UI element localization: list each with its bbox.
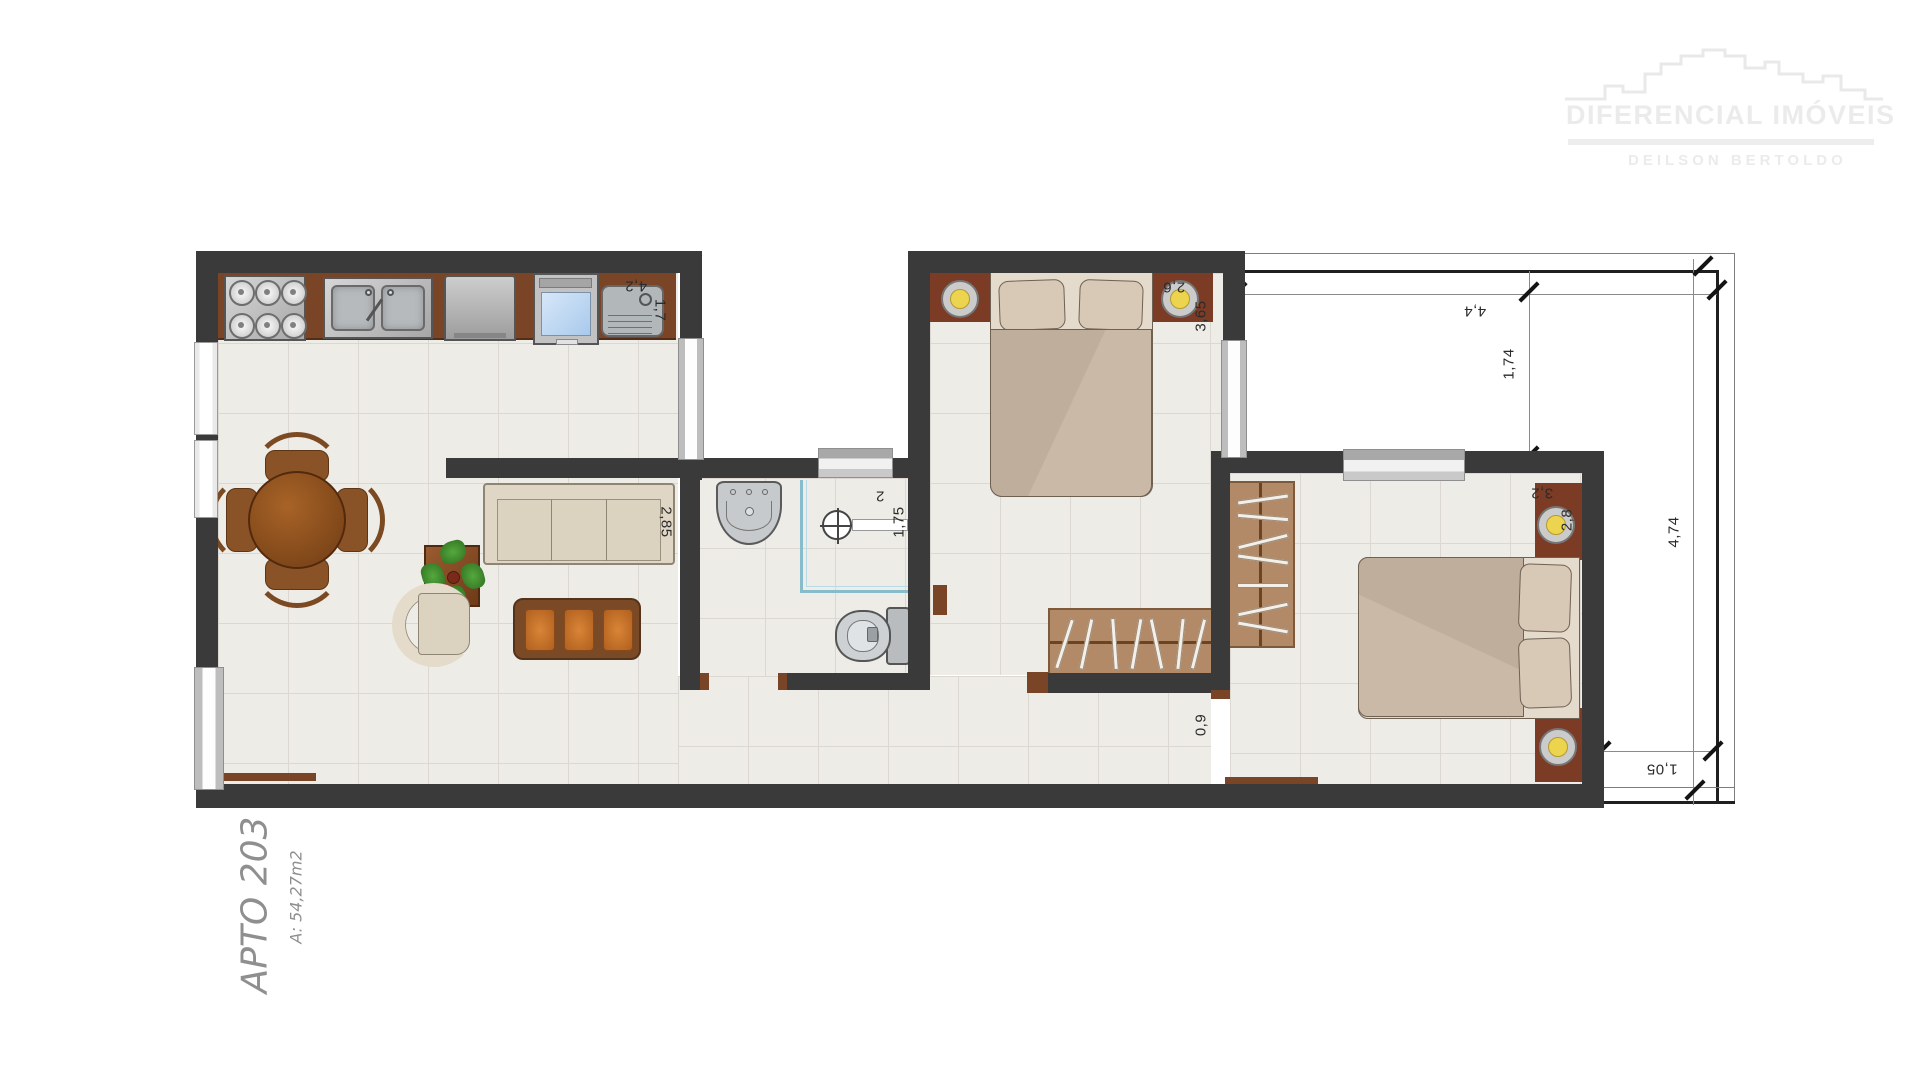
dim-tick <box>1692 255 1713 276</box>
kitchen-right-window <box>678 338 704 460</box>
balcony-inner-bottom-line <box>1601 787 1734 788</box>
dimension-line-balcony-side <box>1601 751 1715 752</box>
wall-bathroom-right <box>908 458 930 690</box>
skyline-logo-icon <box>1563 45 1885 101</box>
wall-bedroom2-right <box>1582 451 1604 808</box>
balcony-bottom-line <box>1601 801 1735 804</box>
bedroom1-door-jamb <box>933 585 947 615</box>
wall-bathroom-top <box>695 458 930 478</box>
wall-bottom <box>196 784 1604 808</box>
dim-balcony-side: 1,05 <box>1646 761 1677 778</box>
dim-bedroom2-width: 3,2 <box>1531 485 1553 502</box>
living-left-window <box>194 440 218 518</box>
toilet <box>835 605 911 667</box>
living-left-door-window <box>194 667 224 790</box>
balcony-outer-right-line <box>1734 253 1735 804</box>
closet-end-cap <box>1027 672 1048 693</box>
shower-head-icon <box>822 510 852 540</box>
watermark-brand: DIFERENCIAL IMÓVEIS <box>1566 100 1896 131</box>
dim-sofa-length: 2,85 <box>658 506 675 537</box>
bath-door-jamb <box>778 673 787 690</box>
apartment-title: APTO 203 <box>235 817 276 994</box>
table-cushion <box>603 609 633 651</box>
bedroom2-door-jamb <box>1211 690 1230 699</box>
bedroom2-wardrobe <box>1228 481 1295 648</box>
double-sink <box>323 277 433 339</box>
kitchen-left-window <box>194 342 218 435</box>
stove-cooktop <box>224 275 306 341</box>
armchair <box>392 583 476 667</box>
dim-bath-width: 2 <box>876 488 885 505</box>
wall-bedroom2-left <box>1211 451 1230 693</box>
dimension-line-balcony-width <box>1233 294 1717 295</box>
dim-bedroom1-depth: 3,65 <box>1193 300 1210 331</box>
dimension-line-balcony-full-depth <box>1693 259 1694 805</box>
dimension-line-balcony-top-depth <box>1529 271 1530 459</box>
sofa <box>483 483 675 565</box>
coffee-table <box>513 598 641 660</box>
wall-living-east <box>680 458 700 677</box>
bedroom1-bed <box>990 272 1153 497</box>
oven-dishwasher <box>533 273 599 345</box>
dim-tick <box>1684 779 1705 800</box>
pillow <box>1078 279 1144 331</box>
dim-kitchen-depth: 1,7 <box>652 299 669 321</box>
living-threshold <box>216 773 316 781</box>
bedside-lamp <box>941 280 979 318</box>
bedroom2-bed <box>1358 557 1580 719</box>
dim-balcony-width: 4,4 <box>1464 303 1486 320</box>
wall-top-left-block <box>196 251 702 273</box>
table-cushion <box>525 609 555 651</box>
dining-table <box>248 471 346 569</box>
watermark-agent: DEILSON BERTOLDO <box>1628 152 1847 169</box>
wall-bedroom1-left <box>908 251 930 461</box>
blanket <box>1358 557 1524 717</box>
pillow <box>1518 563 1572 633</box>
wall-bedroom1-top <box>908 251 1245 273</box>
dim-hall-door: 0,9 <box>1193 714 1210 736</box>
bath-door-jamb <box>700 673 709 690</box>
dim-balcony-full-depth: 4,74 <box>1666 516 1683 547</box>
dim-balcony-top-depth: 1,74 <box>1501 348 1518 379</box>
dim-bath-depth: 1,75 <box>891 506 908 537</box>
watermark-divider <box>1568 139 1874 145</box>
pillow <box>998 279 1066 331</box>
dim-kitchen-width: 4,2 <box>625 278 647 295</box>
table-cushion <box>564 609 594 651</box>
balcony-right-line <box>1716 270 1719 804</box>
floorplan-canvas: DIFERENCIAL IMÓVEIS DEILSON BERTOLDO APT… <box>0 0 1920 1080</box>
balcony-outer-top-line <box>1245 253 1735 254</box>
bathroom-window <box>818 448 893 478</box>
pillow <box>1518 637 1572 709</box>
bedside-lamp <box>1539 728 1577 766</box>
balcony-top-line <box>1245 270 1719 273</box>
bedroom1-balcony-window <box>1221 340 1247 458</box>
wall-closet <box>1028 673 1230 693</box>
dim-bedroom1-width: 2,6 <box>1163 279 1185 296</box>
apartment-area: A: 54,27m2 <box>287 850 306 943</box>
bedroom2-window <box>1343 449 1465 481</box>
hallway-closet <box>1048 608 1215 675</box>
dim-bedroom2-depth: 2,8 <box>1559 509 1576 531</box>
kitchen-appliance <box>444 275 516 341</box>
wall-sofa-divider <box>446 458 702 478</box>
bedroom2-door-leaf <box>1225 777 1318 784</box>
blanket <box>990 329 1152 497</box>
